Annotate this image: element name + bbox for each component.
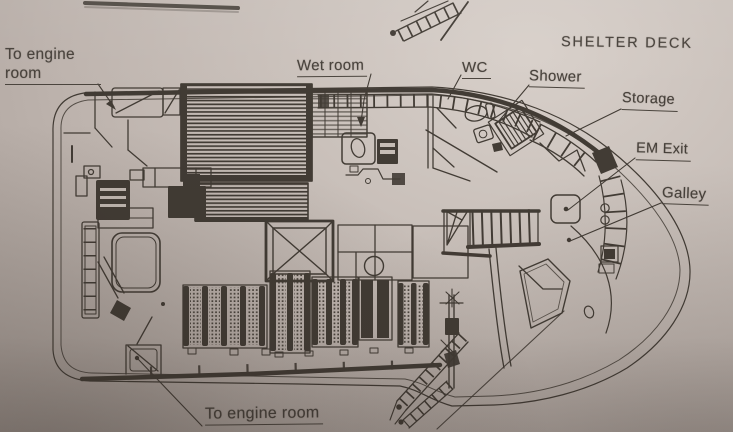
label-to-engine-room-top-line1: To engine: [5, 46, 75, 63]
label-to-engine-room-top-line2: room: [5, 65, 42, 82]
wet-room-appliances: [342, 133, 405, 185]
partial-davit-drawing: [390, 1, 468, 41]
label-wc: WC: [462, 58, 491, 79]
hull-outline: [53, 87, 690, 406]
photo-of-deck-plan: SHELTER DECK To engine room Wet room WC …: [0, 0, 733, 432]
label-shower: Shower: [529, 66, 585, 88]
label-wet-room: Wet room: [297, 56, 367, 78]
skylight-hatch: [266, 221, 333, 281]
dinette: [338, 210, 468, 280]
label-to-engine-room-bottom: To engine room: [205, 403, 323, 425]
bottom-wall: [82, 365, 440, 379]
corridor-walls: [489, 248, 562, 368]
label-storage: Storage: [622, 89, 679, 112]
adjacent-sheet-edge: [85, 3, 238, 12]
label-to-engine-room-top: To engine room: [5, 45, 101, 85]
engine-casing: [181, 84, 367, 222]
label-galley: Galley: [662, 183, 710, 206]
label-em-exit: EM Exit: [636, 139, 692, 161]
seat-rows: [183, 271, 429, 357]
saloon-table: [112, 233, 165, 306]
wc-sink: [473, 125, 493, 144]
wc-room: [426, 96, 497, 181]
deck-machinery: [76, 166, 211, 228]
deck-title: SHELTER DECK: [561, 33, 693, 54]
storage-niche: [540, 143, 618, 223]
